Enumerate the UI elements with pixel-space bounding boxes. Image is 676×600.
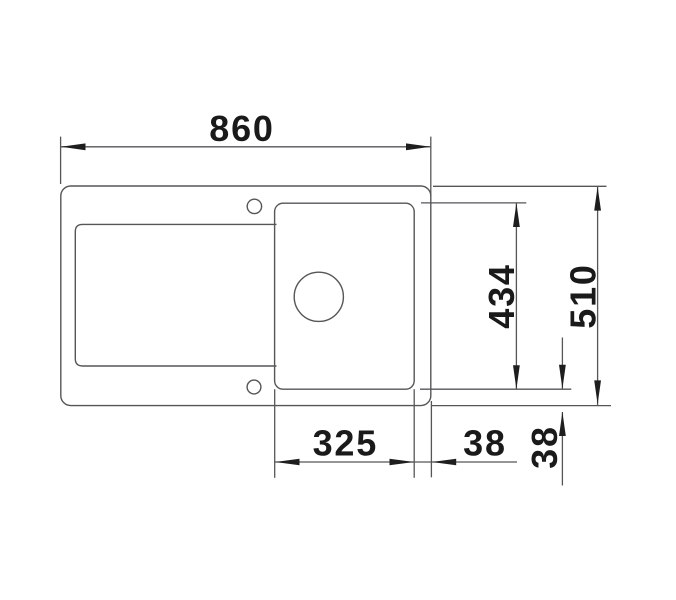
svg-text:860: 860 [209, 108, 274, 149]
svg-text:434: 434 [481, 263, 522, 328]
svg-text:38: 38 [524, 425, 565, 469]
svg-text:510: 510 [563, 263, 604, 328]
svg-text:325: 325 [313, 422, 378, 463]
svg-text:38: 38 [463, 422, 507, 463]
